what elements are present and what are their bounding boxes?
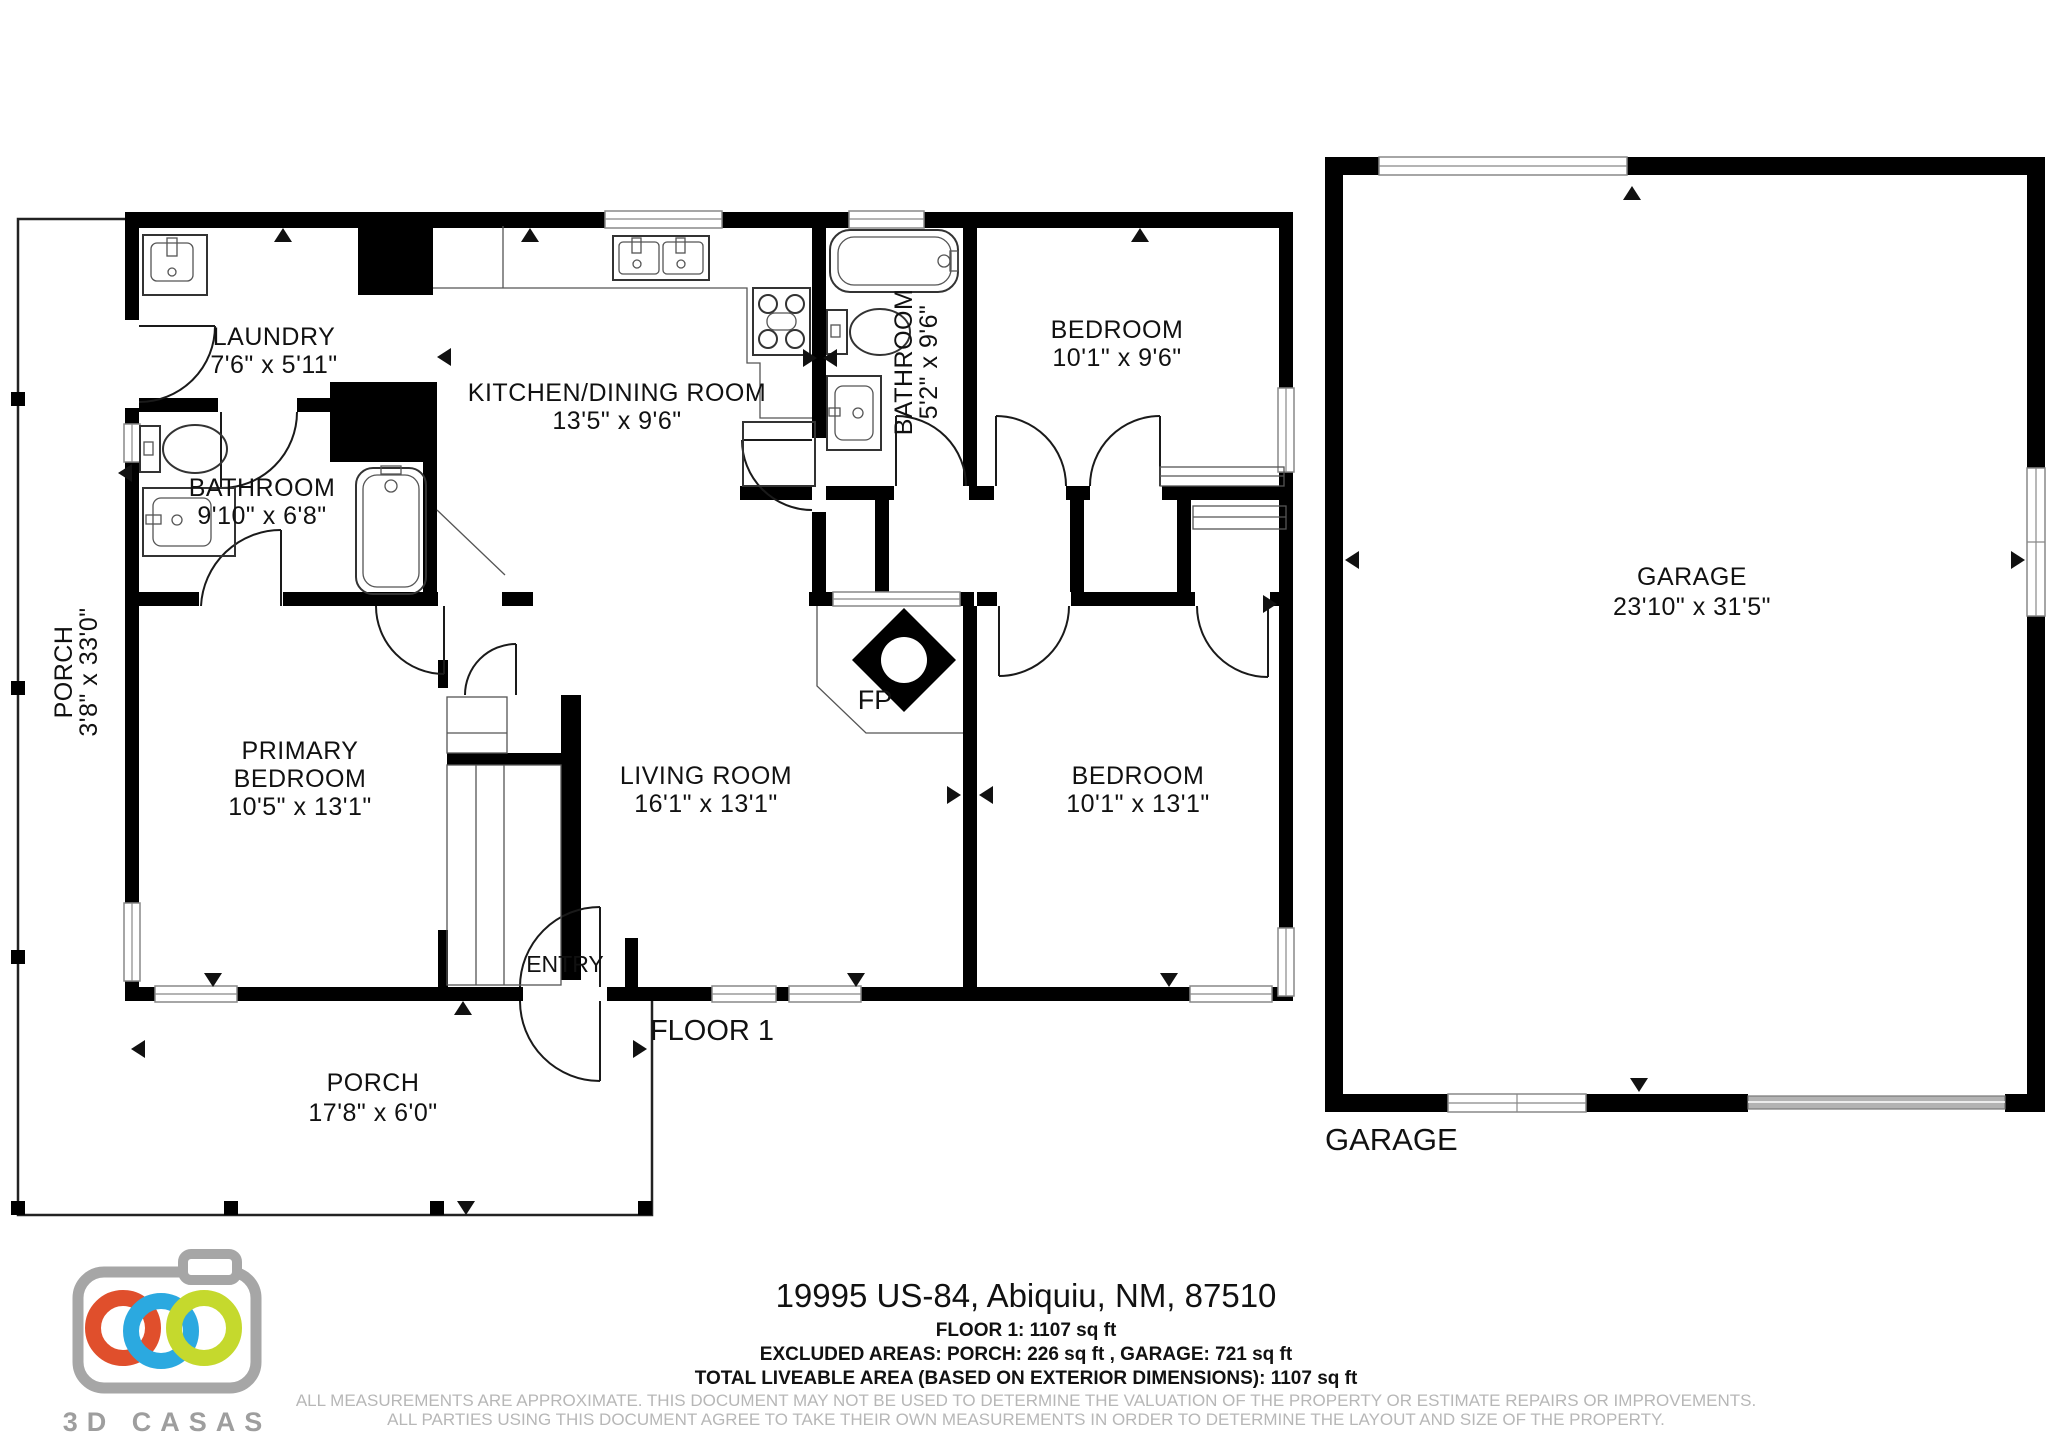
- logo: 3D CASAS: [63, 1254, 272, 1437]
- door-entry-outside: [520, 1001, 600, 1081]
- window: [155, 986, 237, 1002]
- window: [1379, 157, 1627, 175]
- kitchen-dims: 13'5" x 9'6": [552, 407, 681, 435]
- window: [605, 211, 722, 228]
- doors: [139, 326, 1268, 1081]
- window: [712, 986, 776, 1002]
- footer: 19995 US-84, Abiquiu, NM, 87510 FLOOR 1:…: [296, 1277, 1756, 1429]
- kitchen-sink-icon: [613, 236, 709, 280]
- logo-text: 3D CASAS: [63, 1407, 272, 1437]
- disclaimer-line-1: ALL MEASUREMENTS ARE APPROXIMATE. THIS D…: [296, 1391, 1756, 1410]
- utility-closet-block: [358, 212, 433, 295]
- floor-label: FLOOR 1: [650, 1015, 774, 1047]
- living-room-dims: 16'1" x 13'1": [634, 790, 778, 818]
- bedroom-top-dims: 10'1" x 9'6": [1052, 344, 1181, 372]
- garage-door-icon: [1748, 1094, 2005, 1112]
- closet-shelf: [1193, 506, 1286, 529]
- vanity-sink-icon: [827, 376, 881, 450]
- window: [2027, 468, 2045, 616]
- front-porch-dims: 17'8" x 6'0": [308, 1099, 437, 1127]
- door-bedroom-bottom: [999, 606, 1069, 676]
- bathtub-icon: [830, 230, 958, 292]
- garage-dims: 23'10" x 31'5": [1613, 593, 1771, 621]
- garage-structure: [1325, 157, 2045, 1112]
- main-bathroom-dims: 9'10" x 6'8": [197, 502, 326, 530]
- window: [849, 211, 924, 228]
- bedroom-top-label: BEDROOM: [1051, 316, 1184, 344]
- door-linen-closet: [465, 644, 516, 695]
- window: [1278, 928, 1294, 996]
- floor-area-text: FLOOR 1: 1107 sq ft: [936, 1320, 1117, 1341]
- door-bedroom-top-2: [1090, 416, 1160, 486]
- logo-camera-viewfinder: [183, 1254, 237, 1280]
- primary-bedroom-dims: 10'5" x 13'1": [228, 793, 372, 821]
- bathtub-icon: [356, 466, 426, 594]
- fireplace-label: FP: [858, 685, 893, 715]
- primary-bedroom-label-1: PRIMARY: [242, 737, 359, 765]
- garage-outside-label: GARAGE: [1325, 1122, 1458, 1157]
- laundry-dims: 7'6" x 5'11": [210, 351, 337, 379]
- room-labels: LAUNDRY 7'6" x 5'11" KITCHEN/DINING ROOM…: [50, 289, 1771, 1157]
- closet-diagonal: [437, 510, 505, 575]
- kitchen-cabinet: [743, 422, 815, 486]
- window: [1190, 986, 1272, 1002]
- door-bathroom-primary-2: [376, 606, 444, 674]
- door-laundry-exterior: [139, 326, 215, 402]
- hall-bathroom-label: BATHROOM: [890, 289, 918, 436]
- side-porch-dims: 3'8" x 33'0": [75, 607, 103, 736]
- plumbing-wall-block: [330, 382, 437, 462]
- entry-label: ENTRY: [526, 951, 604, 977]
- window: [1448, 1094, 1586, 1112]
- toilet-icon: [140, 425, 227, 473]
- window: [833, 592, 960, 606]
- front-porch-label: PORCH: [327, 1069, 420, 1097]
- primary-bedroom-label-2: BEDROOM: [234, 765, 367, 793]
- linen-closet: [447, 697, 507, 753]
- floorplan-page: LAUNDRY 7'6" x 5'11" KITCHEN/DINING ROOM…: [0, 0, 2048, 1448]
- door-bedroom-bottom-closet: [1197, 606, 1268, 677]
- bedroom-bottom-label: BEDROOM: [1072, 762, 1205, 790]
- door-bedroom-top-1: [996, 416, 1066, 486]
- window: [1278, 388, 1294, 472]
- kitchen-label: KITCHEN/DINING ROOM: [468, 379, 766, 407]
- laundry-label: LAUNDRY: [213, 323, 336, 351]
- laundry-sink-icon: [143, 235, 207, 295]
- hall-bathroom-dims: 5'2" x 9'6": [915, 305, 943, 420]
- window: [124, 903, 140, 981]
- address: 19995 US-84, Abiquiu, NM, 87510: [776, 1277, 1277, 1314]
- main-bathroom-label: BATHROOM: [189, 474, 336, 502]
- floorplan-canvas: LAUNDRY 7'6" x 5'11" KITCHEN/DINING ROOM…: [0, 0, 2048, 1448]
- side-porch-label: PORCH: [50, 626, 78, 719]
- stove-icon: [753, 288, 810, 355]
- excluded-areas-text: EXCLUDED AREAS: PORCH: 226 sq ft , GARAG…: [760, 1344, 1293, 1365]
- bedroom-bottom-dims: 10'1" x 13'1": [1066, 790, 1210, 818]
- living-room-label: LIVING ROOM: [620, 762, 792, 790]
- garage-label: GARAGE: [1637, 563, 1747, 591]
- total-area-text: TOTAL LIVEABLE AREA (BASED ON EXTERIOR D…: [695, 1368, 1358, 1389]
- disclaimer-line-2: ALL PARTIES USING THIS DOCUMENT AGREE TO…: [387, 1410, 1665, 1429]
- window: [789, 986, 861, 1002]
- window: [124, 424, 140, 462]
- closet-shelf: [1160, 467, 1284, 486]
